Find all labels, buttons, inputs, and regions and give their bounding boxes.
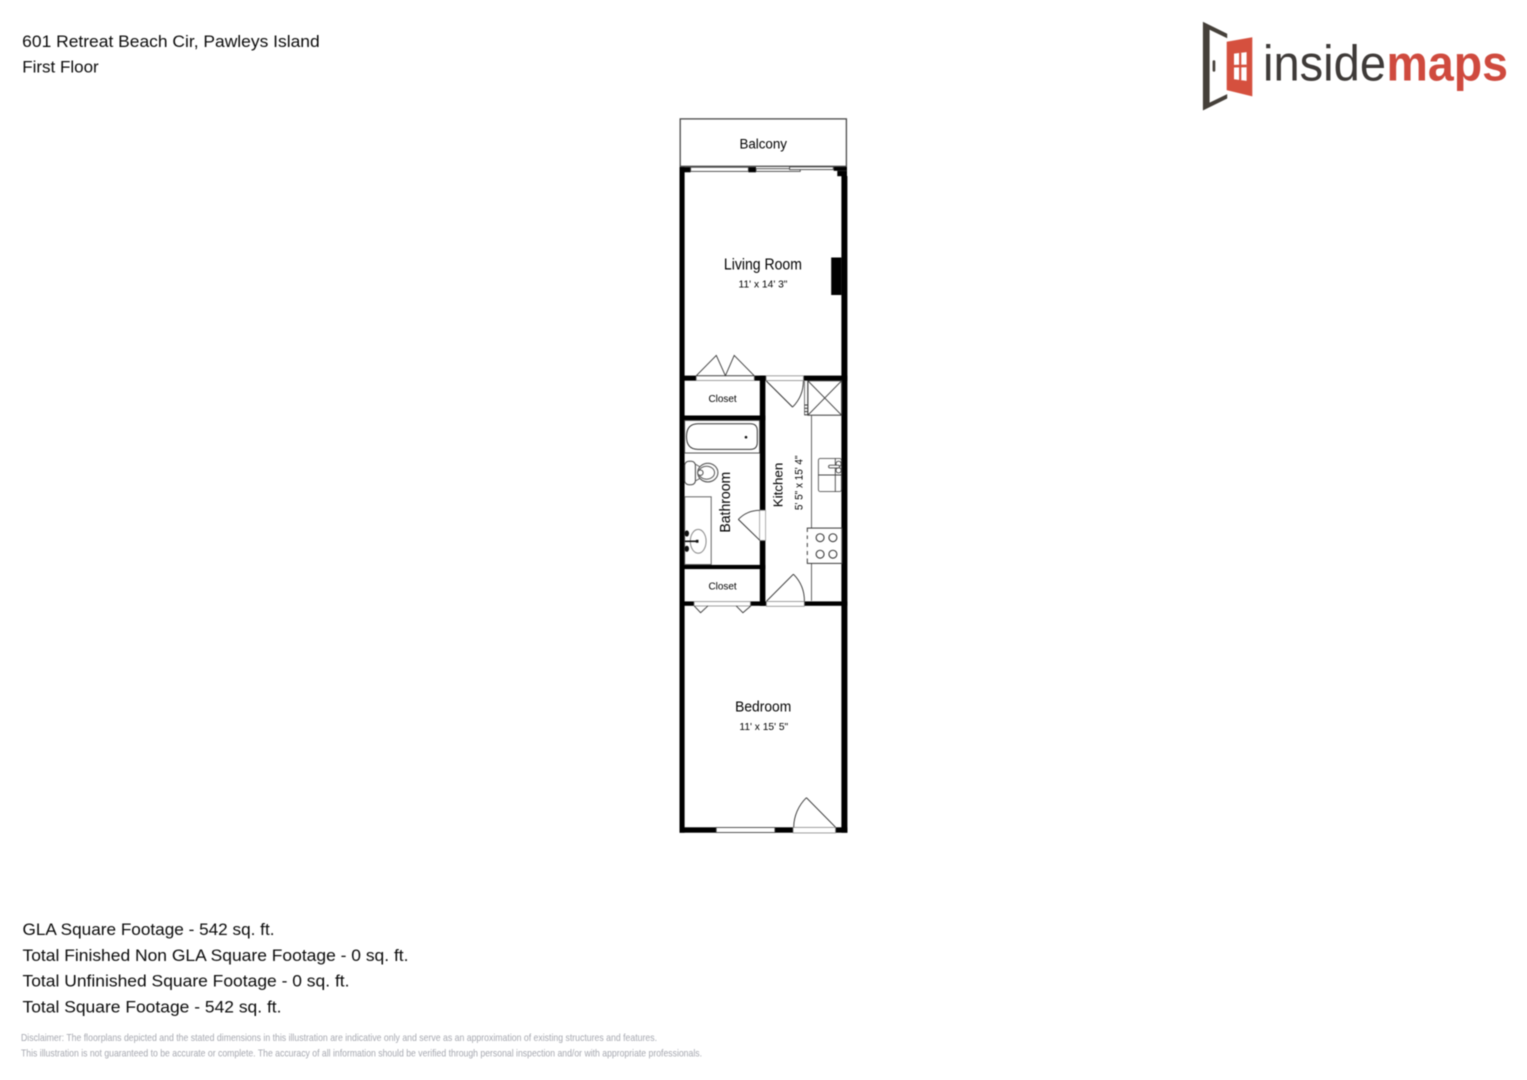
svg-text:Disclaimer: The floorplans dep: Disclaimer: The floorplans depicted and … xyxy=(21,1033,657,1044)
svg-text:Closet: Closet xyxy=(709,394,737,405)
svg-text:Total Square Footage - 542 sq.: Total Square Footage - 542 sq. ft. xyxy=(23,997,282,1016)
svg-text:601 Retreat Beach Cir, Pawleys: 601 Retreat Beach Cir, Pawleys Island xyxy=(22,32,320,51)
svg-text:11' x 15' 5": 11' x 15' 5" xyxy=(739,722,788,733)
svg-text:11' x 14' 3": 11' x 14' 3" xyxy=(739,279,788,290)
svg-text:5' 5" x 15' 4": 5' 5" x 15' 4" xyxy=(794,455,806,510)
svg-text:Living Room: Living Room xyxy=(724,256,802,273)
svg-text:Closet: Closet xyxy=(709,582,737,593)
svg-text:This illustration is not guara: This illustration is not guaranteed to b… xyxy=(21,1048,702,1059)
svg-text:Bedroom: Bedroom xyxy=(735,700,791,716)
svg-text:Kitchen: Kitchen xyxy=(771,463,786,508)
svg-text:GLA Square Footage - 542 sq. f: GLA Square Footage - 542 sq. ft. xyxy=(23,920,275,939)
svg-text:Total Unfinished Square Footag: Total Unfinished Square Footage - 0 sq. … xyxy=(23,972,350,991)
svg-text:inside: inside xyxy=(1263,35,1386,92)
svg-text:First Floor: First Floor xyxy=(22,58,99,77)
svg-text:maps: maps xyxy=(1387,35,1509,92)
svg-text:Bathroom: Bathroom xyxy=(718,472,734,533)
svg-text:Balcony: Balcony xyxy=(739,136,787,151)
svg-text:Total Finished Non GLA Square: Total Finished Non GLA Square Footage - … xyxy=(23,946,409,965)
